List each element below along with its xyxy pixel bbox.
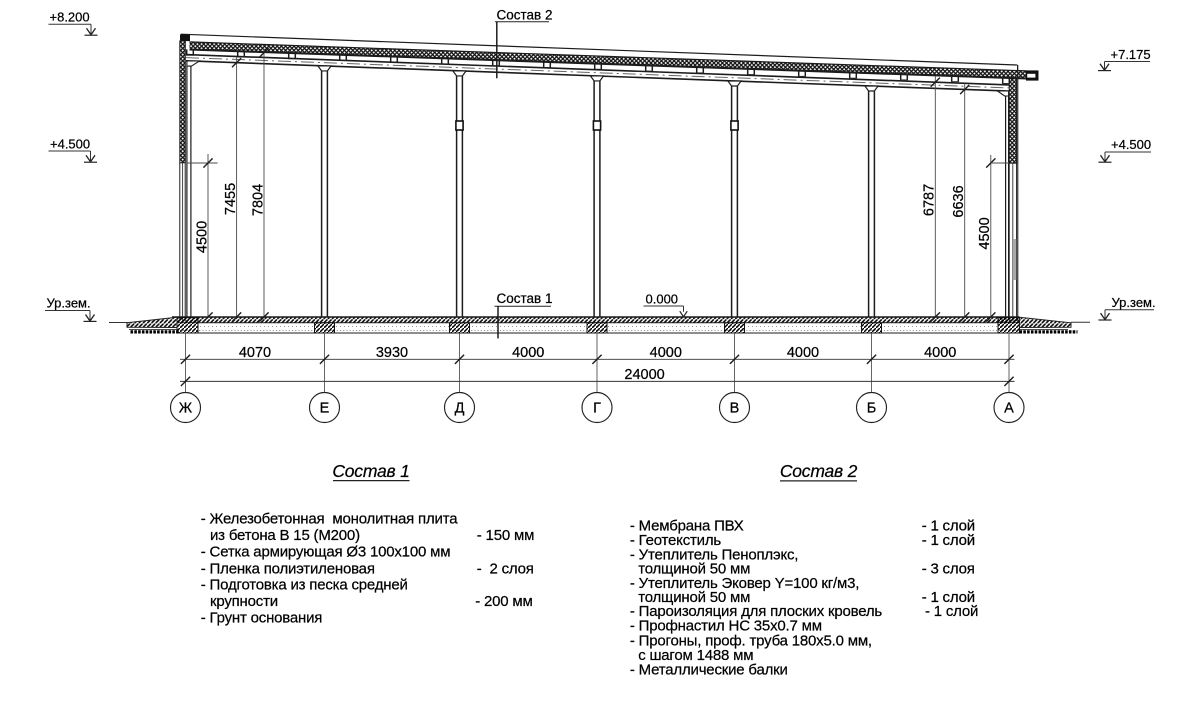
- svg-text:6636: 6636: [951, 185, 967, 217]
- svg-text:Состав 1: Состав 1: [332, 461, 409, 481]
- svg-text:4000: 4000: [512, 345, 544, 361]
- svg-text:Ур.зем.: Ур.зем.: [1112, 295, 1156, 310]
- svg-text:3930: 3930: [376, 345, 408, 361]
- svg-text:7455: 7455: [223, 183, 239, 215]
- svg-text:4070: 4070: [239, 345, 271, 361]
- svg-text:- 1 слой: - 1 слой: [922, 532, 975, 549]
- svg-text:- Пленка полиэтиленовая: - Пленка полиэтиленовая: [201, 561, 375, 578]
- svg-text:Состав 1: Состав 1: [497, 291, 553, 306]
- svg-text:Д: Д: [455, 401, 465, 417]
- svg-text:- 150 мм: - 150 мм: [477, 527, 534, 544]
- svg-text:- 1 слой: - 1 слой: [925, 603, 978, 620]
- svg-text:Ж: Ж: [179, 401, 193, 417]
- svg-text:В: В: [730, 401, 740, 417]
- svg-text:4500: 4500: [977, 217, 993, 249]
- svg-text:+8.200: +8.200: [50, 10, 90, 25]
- svg-text:Состав 2: Состав 2: [780, 461, 858, 481]
- svg-text:6787: 6787: [922, 184, 938, 216]
- svg-text:Состав 2: Состав 2: [497, 7, 553, 22]
- svg-text:4000: 4000: [650, 345, 682, 361]
- svg-text:+4.500: +4.500: [1111, 137, 1151, 152]
- svg-text:- Грунт основания: - Грунт основания: [201, 609, 323, 626]
- svg-text:Е: Е: [320, 401, 330, 417]
- svg-text:0.000: 0.000: [646, 291, 679, 306]
- svg-text:+7.175: +7.175: [1111, 47, 1151, 62]
- svg-text:4500: 4500: [194, 221, 210, 253]
- svg-text:- Подготовка из песка средней: - Подготовка из песка средней: [201, 577, 408, 594]
- svg-text:- 3 слоя: - 3 слоя: [922, 561, 975, 578]
- svg-text:А: А: [1004, 401, 1014, 417]
- svg-text:крупности: крупности: [210, 593, 278, 610]
- svg-text:- Железобетонная монолитная п: - Железобетонная монолитная плита: [201, 511, 458, 528]
- svg-text:- Металлические балки: - Металлические балки: [630, 661, 788, 678]
- svg-text:Г: Г: [593, 401, 601, 417]
- svg-text:из бетона В 15 (М200): из бетона В 15 (М200): [210, 527, 360, 544]
- svg-text:- 2 слоя: - 2 слоя: [477, 561, 534, 578]
- svg-text:Ур.зем.: Ур.зем.: [47, 295, 91, 310]
- svg-text:- Сетка армирующая Ø3 100х100: - Сетка армирующая Ø3 100х100 мм: [201, 544, 451, 561]
- svg-text:24000: 24000: [624, 367, 664, 383]
- svg-text:+4.500: +4.500: [50, 136, 90, 151]
- svg-text:4000: 4000: [924, 345, 956, 361]
- svg-text:7804: 7804: [250, 184, 266, 216]
- svg-text:Б: Б: [867, 401, 877, 417]
- svg-text:4000: 4000: [787, 345, 819, 361]
- svg-text:- 200 мм: - 200 мм: [475, 593, 532, 610]
